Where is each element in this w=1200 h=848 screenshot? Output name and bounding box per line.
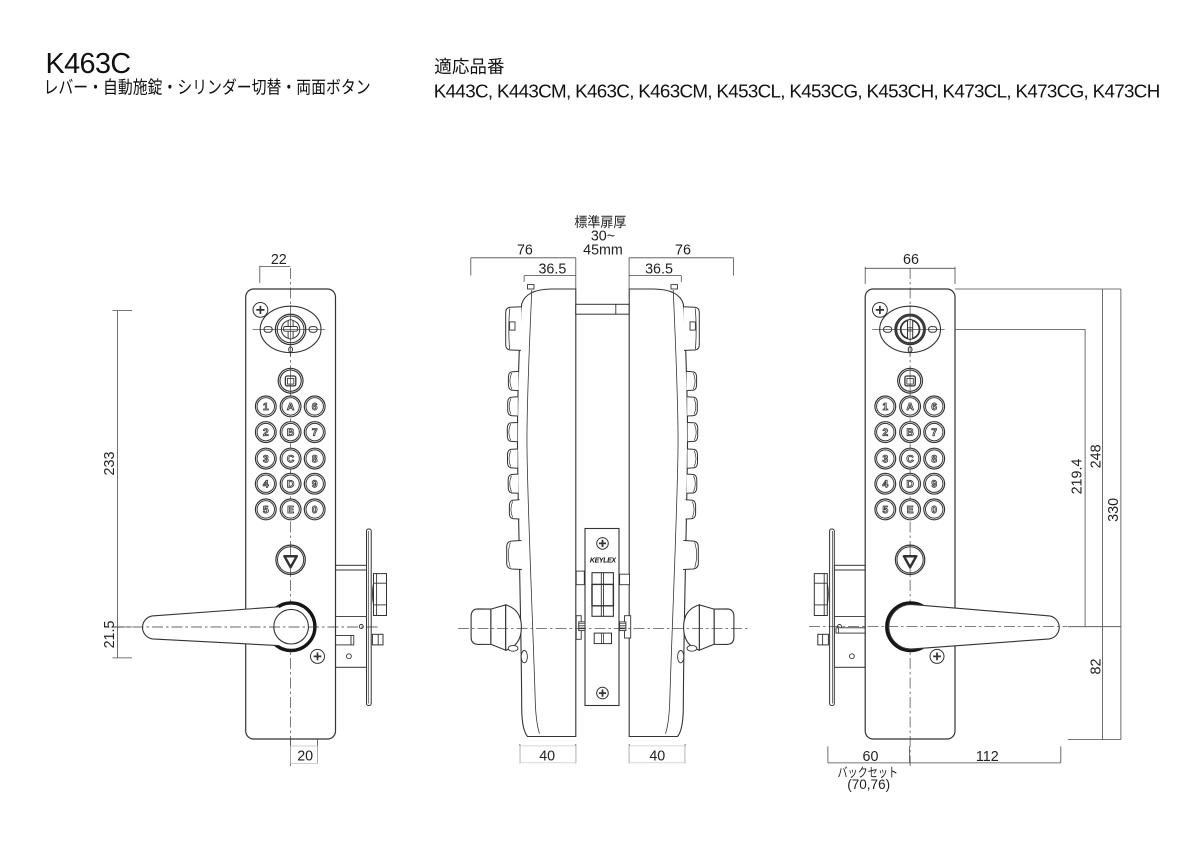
svg-text:76: 76: [517, 243, 533, 259]
svg-text:KEYLEX: KEYLEX: [590, 555, 617, 564]
svg-text:22: 22: [271, 252, 287, 268]
svg-text:82: 82: [1089, 659, 1105, 675]
svg-text:60: 60: [863, 749, 879, 765]
svg-text:36.5: 36.5: [645, 262, 673, 278]
svg-text:40: 40: [539, 748, 555, 764]
svg-text:112: 112: [976, 749, 999, 765]
svg-text:76: 76: [675, 243, 691, 259]
svg-text:K443C, K443CM, K463C, K463CM,: K443C, K443CM, K463C, K463CM, K453CL, K4…: [434, 81, 1160, 102]
svg-text:K463C: K463C: [46, 48, 131, 80]
svg-text:40: 40: [649, 748, 665, 764]
svg-text:36.5: 36.5: [538, 262, 566, 278]
svg-text:21.5: 21.5: [102, 621, 118, 649]
svg-text:248: 248: [1089, 444, 1105, 468]
svg-text:(70,76): (70,76): [847, 777, 890, 792]
svg-text:45mm: 45mm: [583, 243, 623, 259]
svg-text:20: 20: [297, 748, 313, 764]
svg-text:66: 66: [903, 252, 919, 268]
svg-text:330: 330: [1106, 498, 1122, 522]
svg-text:233: 233: [102, 452, 118, 476]
svg-text:219.4: 219.4: [1070, 459, 1086, 495]
